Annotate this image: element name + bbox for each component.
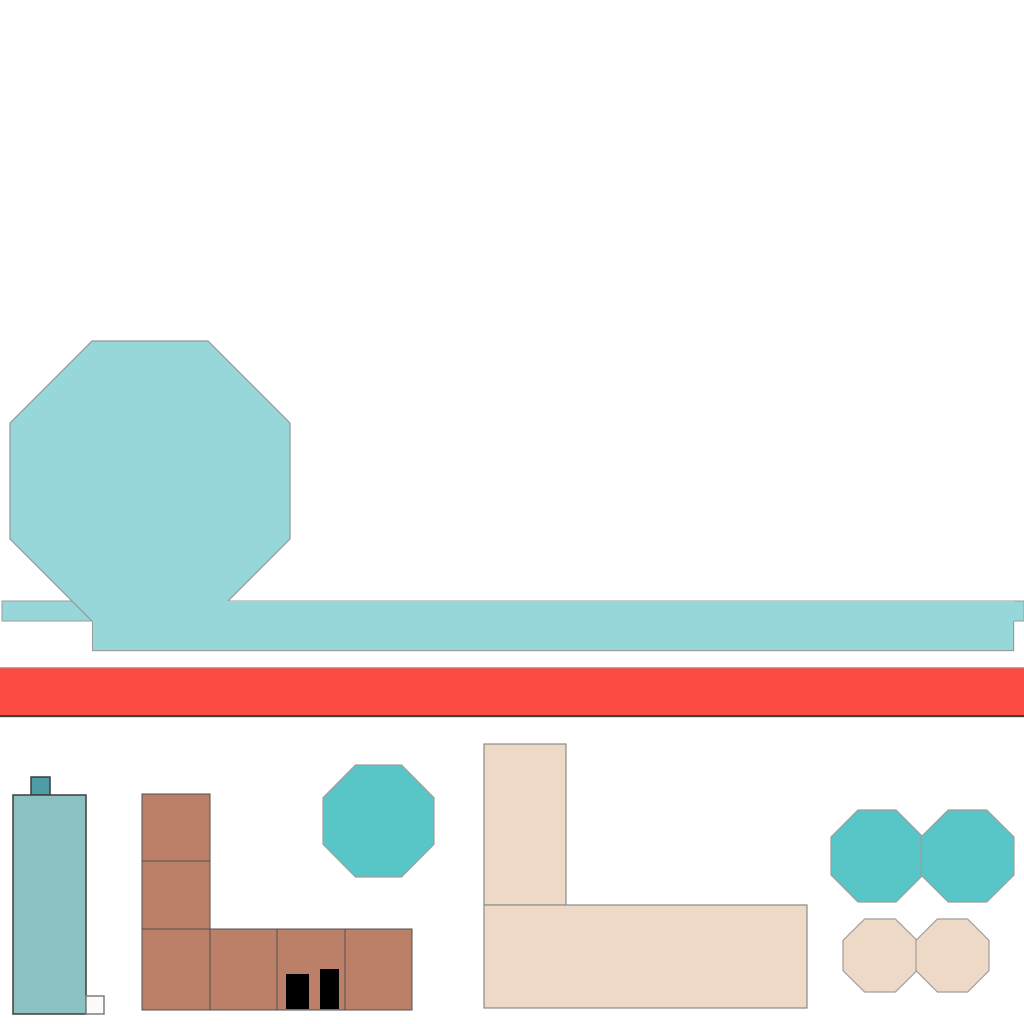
teal-building-white-door — [86, 996, 104, 1014]
red-stripe — [0, 668, 1024, 716]
sky-bar-thick — [92, 601, 1014, 651]
brown-block-base-4 — [345, 929, 412, 1010]
brown-block-base-2 — [210, 929, 277, 1010]
brown-block-mid — [142, 861, 210, 929]
brown-building-door-2 — [320, 969, 339, 1009]
brown-building-door-1 — [286, 974, 309, 1009]
abstract-shape-scene — [0, 0, 1024, 1024]
teal-octagon-pair-left — [831, 810, 923, 902]
scene-canvas — [0, 0, 1024, 1024]
large-light-octagon — [10, 341, 290, 621]
beige-tower — [484, 744, 566, 905]
red-stripe-bottom-edge — [0, 715, 1024, 717]
teal-building-chimney — [31, 777, 50, 795]
teal-octagon-pair-right — [921, 810, 1014, 902]
sky-bar-right-edge — [1013, 621, 1014, 651]
beige-base — [484, 905, 807, 1008]
sky-bar-bottom-edge — [92, 650, 1014, 651]
beige-octagon-pair-left — [843, 919, 917, 992]
beige-octagon-pair-right — [916, 919, 989, 992]
small-teal-octagon — [323, 765, 434, 877]
brown-block-top — [142, 794, 210, 861]
teal-building-body — [13, 795, 86, 1014]
sky-bar-left-edge — [92, 621, 93, 651]
brown-block-base-1 — [142, 929, 210, 1010]
red-stripe-top-edge — [0, 667, 1024, 668]
